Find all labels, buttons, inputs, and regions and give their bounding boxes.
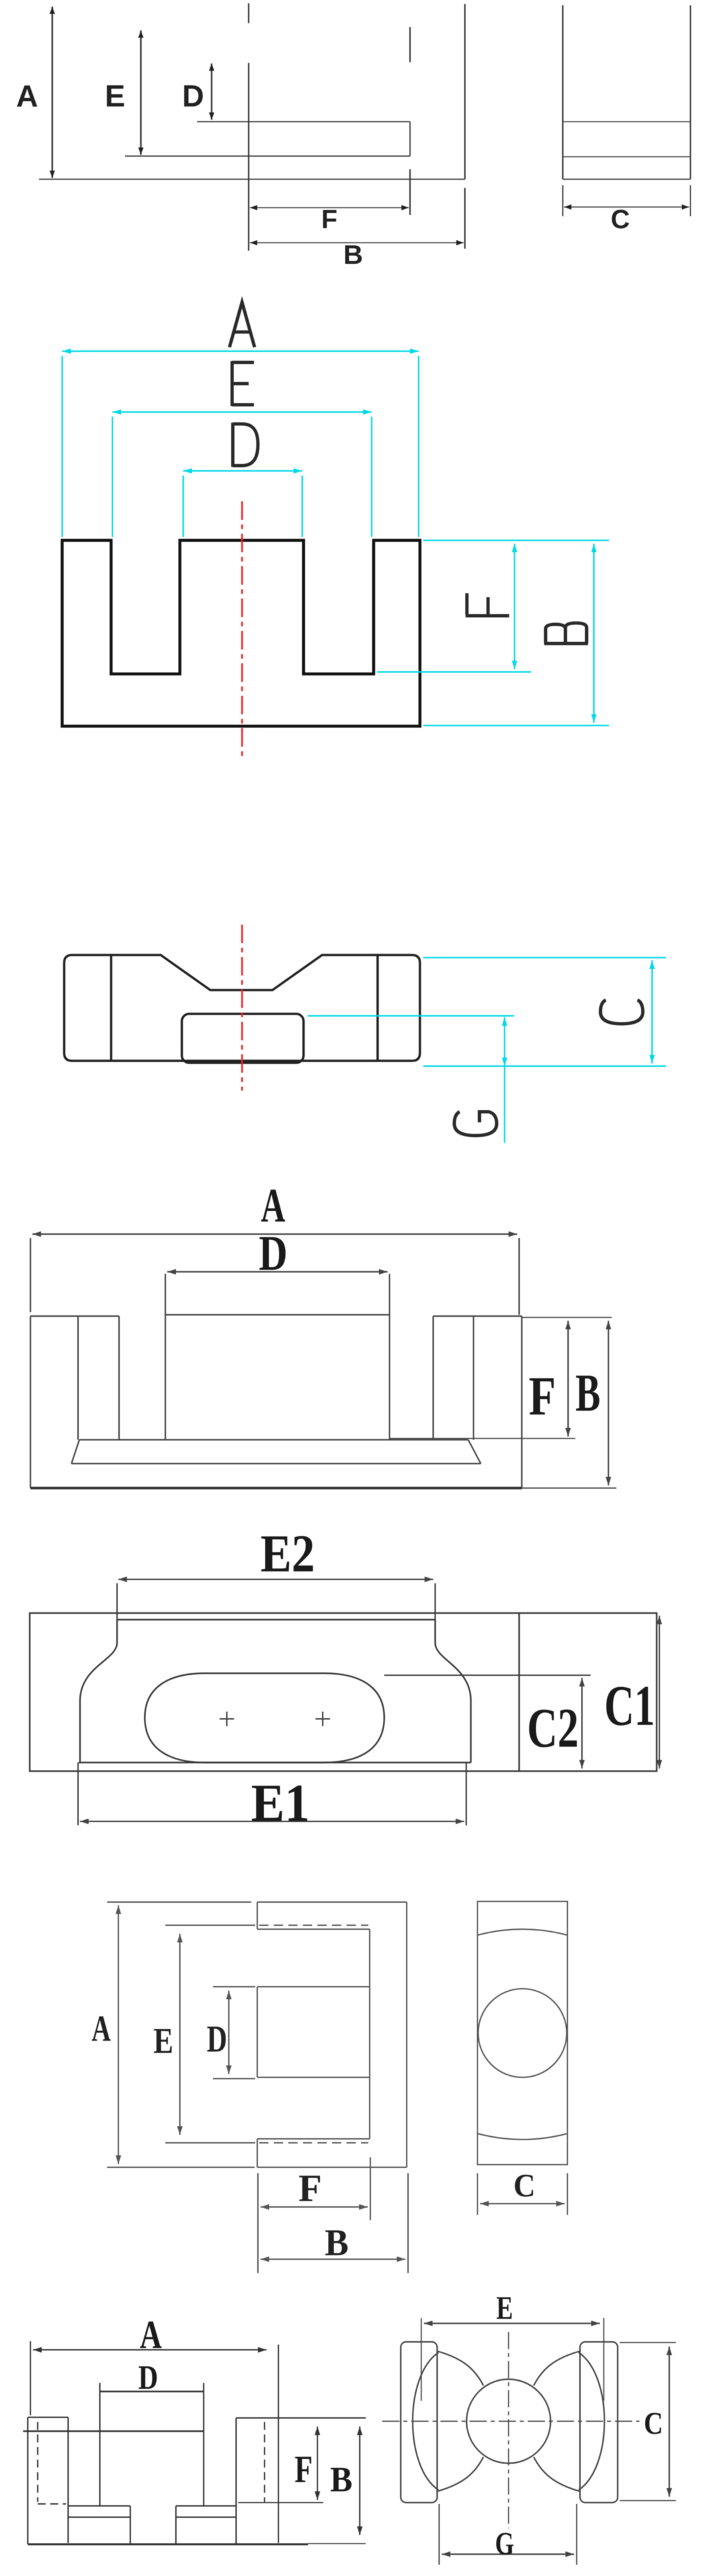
svg-text:E: E [105, 79, 126, 113]
svg-text:B: B [343, 239, 363, 270]
svg-text:B: B [330, 2460, 352, 2500]
svg-text:B: B [575, 1364, 600, 1423]
svg-text:A: A [261, 1179, 286, 1232]
svg-text:D: D [138, 2359, 158, 2397]
svg-text:A: A [140, 2312, 162, 2356]
svg-text:C: C [611, 205, 630, 234]
svg-text:F: F [298, 2167, 321, 2210]
svg-text:C1: C1 [604, 1674, 655, 1737]
svg-text:D: D [182, 79, 204, 113]
svg-text:A: A [91, 2009, 110, 2050]
svg-text:A: A [16, 79, 38, 113]
svg-text:E2: E2 [261, 1524, 315, 1584]
svg-text:E: E [496, 2289, 513, 2326]
svg-text:D: D [259, 1226, 287, 1281]
svg-text:C: C [513, 2167, 535, 2204]
svg-text:B: B [325, 2222, 349, 2264]
svg-text:F: F [321, 205, 337, 234]
svg-text:E1: E1 [251, 1773, 310, 1832]
svg-text:G: G [495, 2526, 515, 2561]
svg-text:C: C [643, 2406, 663, 2441]
svg-text:C2: C2 [527, 1697, 579, 1759]
svg-text:D: D [207, 2018, 227, 2059]
svg-text:F: F [528, 1366, 556, 1427]
svg-text:E: E [153, 2020, 173, 2061]
svg-text:F: F [294, 2449, 312, 2491]
